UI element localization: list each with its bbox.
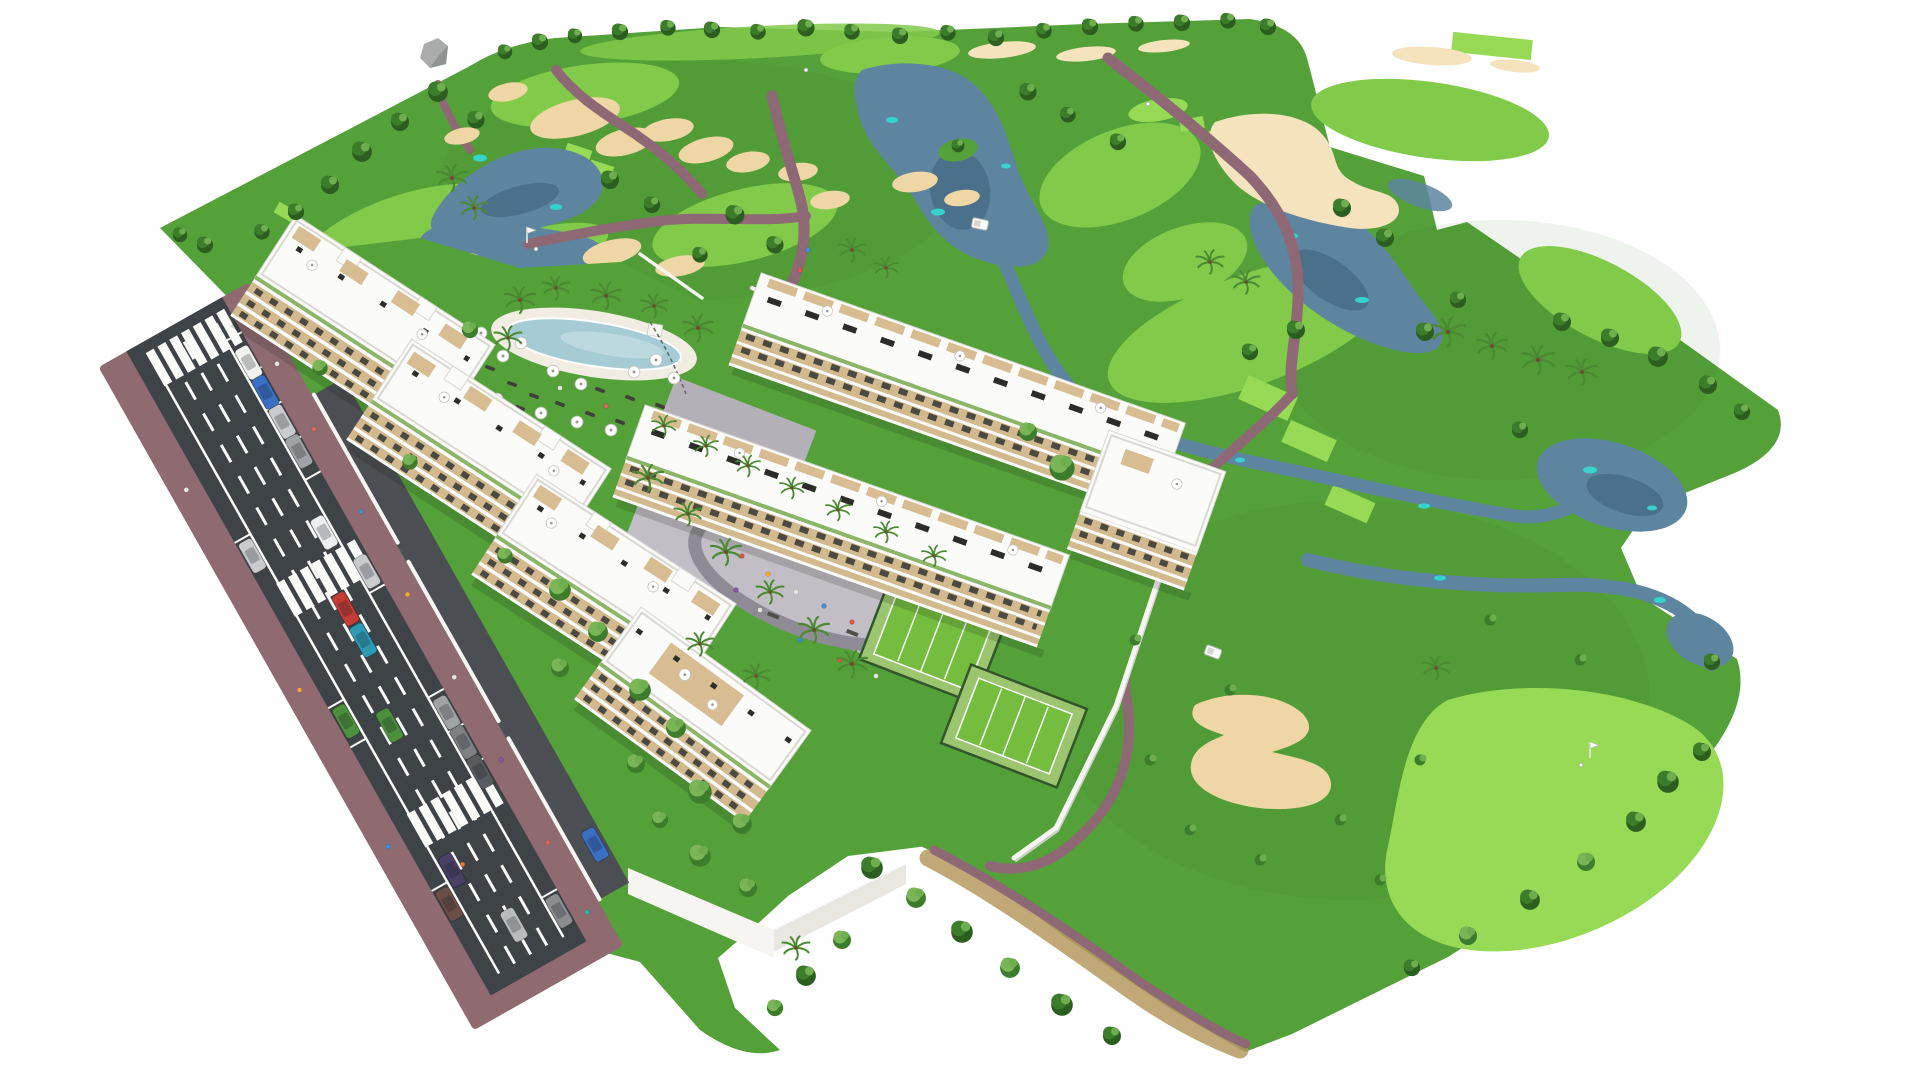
golfer (804, 68, 808, 72)
golfer (1579, 763, 1583, 767)
aerial-render-illustration (0, 0, 1920, 1079)
render-canvas (0, 0, 1920, 1079)
golfer (1146, 102, 1150, 106)
rock-feature (420, 38, 448, 68)
putting-green-flag-lobe (1385, 688, 1723, 951)
golfer (534, 247, 538, 251)
